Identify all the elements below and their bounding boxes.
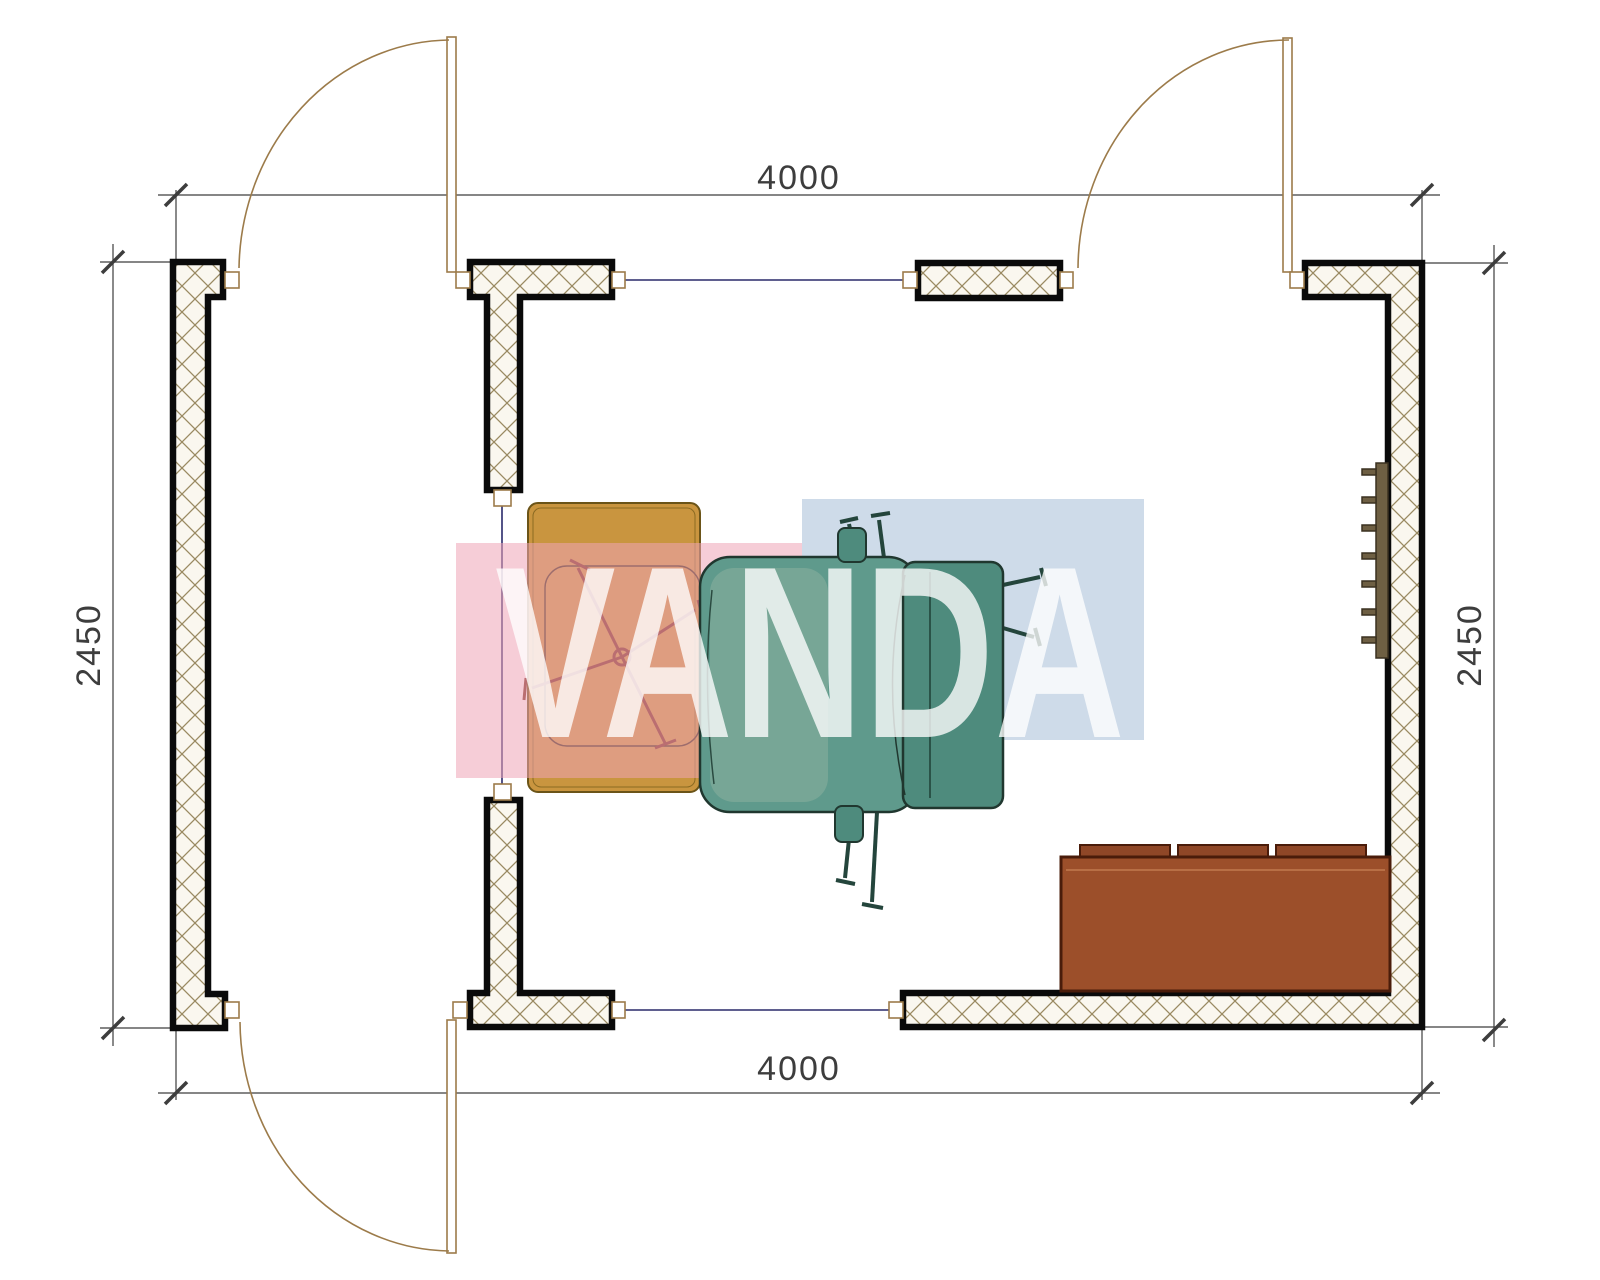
jamb: [903, 272, 917, 288]
floor-plan-page: 4000 4000 2450 2450: [0, 0, 1600, 1280]
sofa-icon: [1061, 845, 1390, 991]
radiator-icon: [1362, 463, 1388, 658]
jamb: [456, 272, 470, 288]
dimension-right: 2450: [1422, 245, 1508, 1047]
jamb: [612, 1002, 625, 1018]
jamb: [612, 272, 625, 288]
dimension-bottom: 4000: [158, 1027, 1440, 1104]
dimension-top: 4000: [158, 159, 1440, 263]
door-swing-icon: [240, 1020, 456, 1253]
wall-left: [173, 262, 225, 1028]
jamb: [889, 1002, 903, 1018]
dimension-label-left: 2450: [70, 603, 108, 687]
watermark-text: VANDA: [495, 515, 1125, 789]
jamb: [494, 490, 511, 506]
door-swing-icon: [239, 37, 456, 272]
dimension-label-bottom: 4000: [757, 1050, 841, 1088]
jamb: [1290, 272, 1304, 288]
jamb: [453, 1002, 467, 1018]
door-swing-icon: [1078, 38, 1292, 272]
wall-top-right-mid: [918, 263, 1060, 298]
jamb: [1060, 272, 1073, 288]
wall-top-center: [470, 262, 612, 490]
jamb: [225, 1002, 239, 1018]
dimension-label-top: 4000: [757, 159, 841, 197]
floor-plan-canvas: 4000 4000 2450 2450: [0, 0, 1600, 1280]
dimension-label-right: 2450: [1451, 603, 1489, 687]
dimension-left: 2450: [70, 244, 173, 1046]
jamb: [225, 272, 239, 288]
wall-bottom-center: [470, 800, 612, 1027]
